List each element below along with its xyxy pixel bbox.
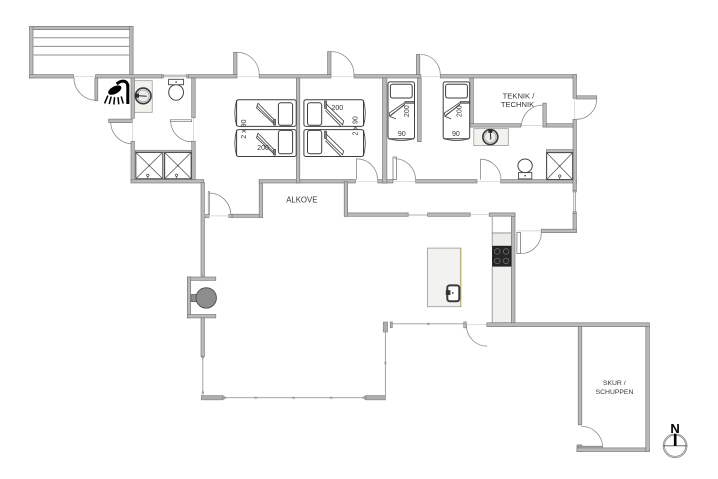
svg-text:200: 200	[331, 104, 343, 112]
svg-text:2 x 90: 2 x 90	[240, 119, 248, 138]
svg-text:SCHUPPEN: SCHUPPEN	[596, 389, 634, 396]
svg-text:SKUR /: SKUR /	[603, 380, 626, 387]
svg-text:TECHNIK: TECHNIK	[501, 100, 534, 109]
svg-text:200: 200	[257, 144, 269, 152]
svg-text:N: N	[670, 421, 679, 436]
svg-text:ALKOVE: ALKOVE	[286, 196, 317, 205]
svg-text:90: 90	[398, 130, 406, 138]
svg-text:200: 200	[403, 105, 411, 117]
svg-text:90: 90	[452, 130, 460, 138]
svg-text:2 x 90: 2 x 90	[352, 116, 360, 135]
svg-text:200: 200	[455, 105, 463, 117]
